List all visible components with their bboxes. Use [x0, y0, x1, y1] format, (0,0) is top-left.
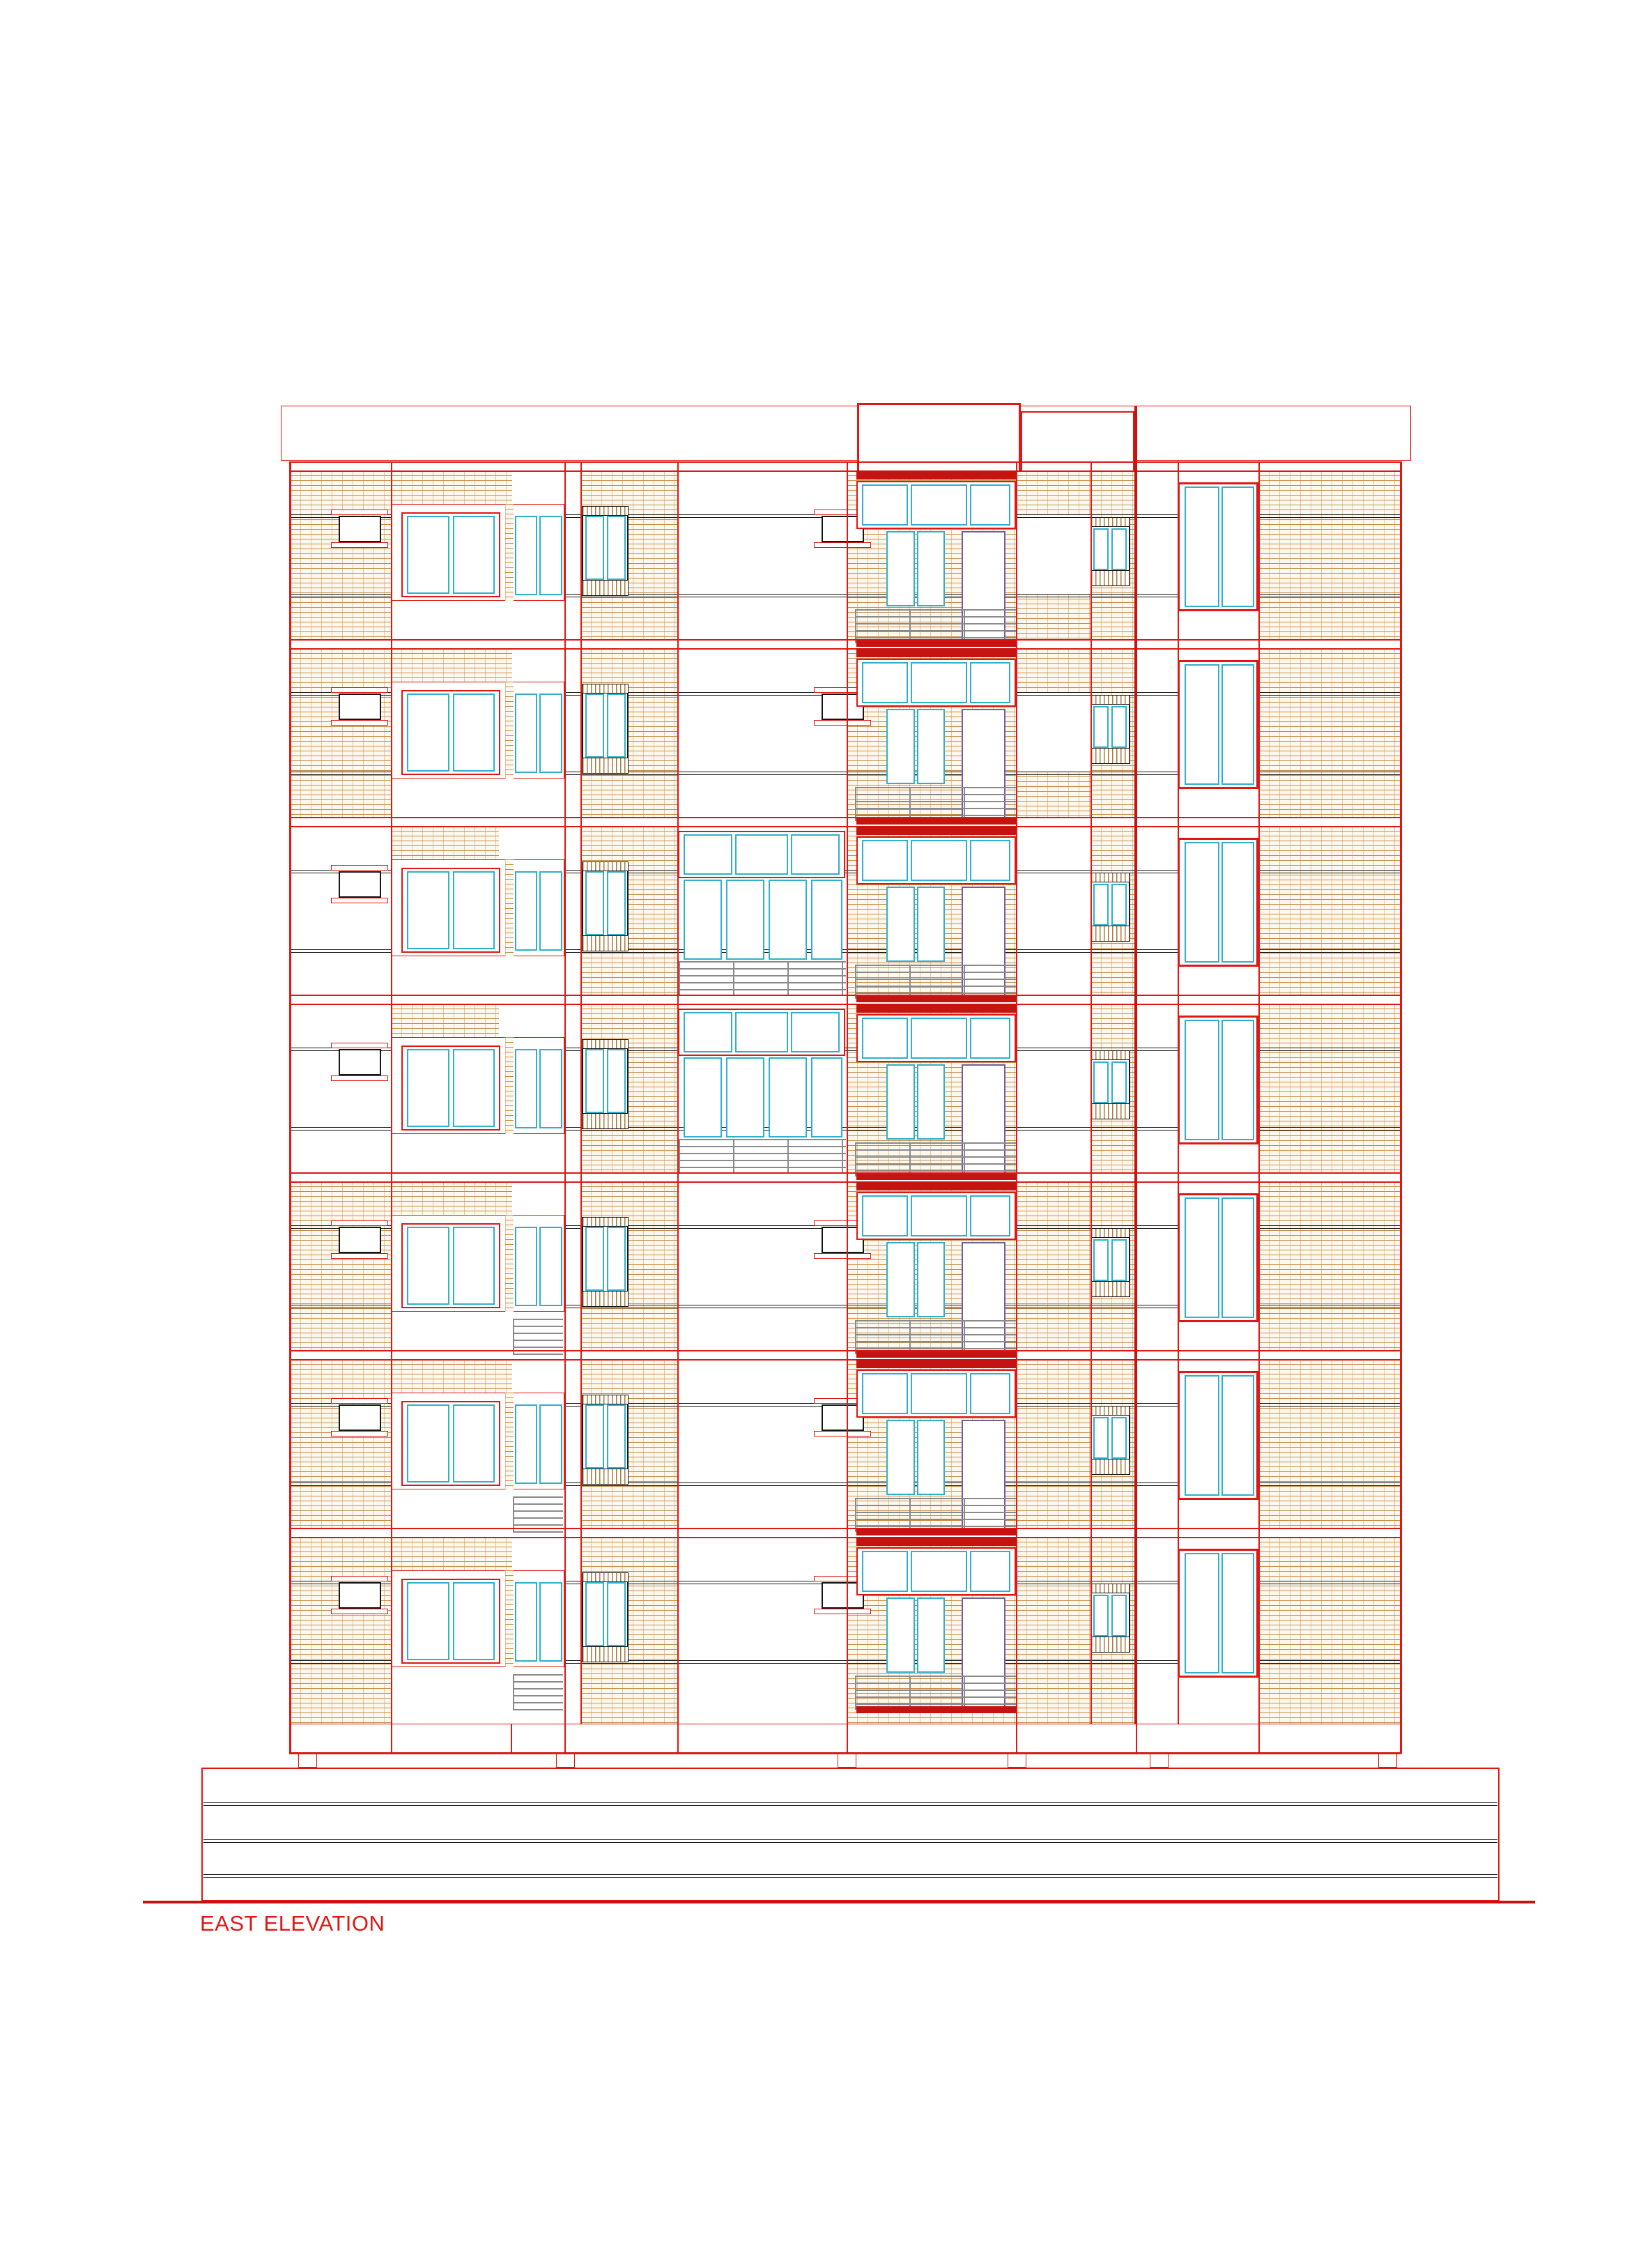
balcony-slab	[856, 1181, 1016, 1190]
vent-hatch	[1090, 570, 1130, 586]
vent-hatch	[1090, 1281, 1130, 1297]
footing	[556, 1754, 575, 1768]
window-pane	[607, 1404, 626, 1469]
window-pane	[970, 1018, 1010, 1059]
vent-hatch	[582, 506, 629, 516]
window-pane	[1111, 528, 1127, 570]
building-outline-right	[1400, 461, 1402, 1754]
floor-line	[290, 1359, 1401, 1361]
window-pane	[585, 871, 604, 935]
window-small-sill	[331, 1075, 388, 1081]
window-pane	[407, 1404, 449, 1482]
window-small-sill	[814, 1253, 871, 1259]
window-pane	[1185, 842, 1219, 963]
vent-hatch	[582, 684, 629, 694]
sunroom-glazing	[811, 880, 842, 960]
window-pane	[1111, 1595, 1127, 1637]
window-pane	[1111, 1062, 1127, 1103]
window-pane	[1093, 1595, 1109, 1637]
sunroom-glazing	[917, 1064, 945, 1140]
floor-line	[290, 470, 1401, 472]
window-pane	[407, 871, 449, 949]
column-line	[564, 461, 566, 1724]
window-narrow	[539, 1404, 562, 1484]
balcony-railing	[855, 787, 1016, 821]
brick-panel	[290, 1537, 391, 1724]
window-small-sill	[331, 1431, 388, 1436]
window-pane	[684, 834, 732, 875]
vent-hatch	[1090, 748, 1130, 764]
window-pane	[735, 1012, 788, 1052]
window-pane	[911, 1551, 967, 1592]
brick-panel	[1258, 826, 1401, 995]
column-line	[677, 461, 679, 1724]
column-line	[1016, 461, 1017, 1724]
balcony-slab	[856, 1351, 1016, 1358]
balcony-slab	[856, 1173, 1016, 1180]
vent-hatch	[1090, 926, 1130, 942]
window-pane	[1093, 1417, 1109, 1459]
sunroom-glazing	[886, 709, 915, 784]
floor-line	[290, 1181, 1401, 1183]
window-pane	[1185, 1553, 1219, 1673]
column-line	[847, 461, 848, 1724]
window-narrow	[539, 1227, 562, 1306]
window-pane	[911, 1195, 967, 1236]
sunroom-glazing	[917, 887, 945, 962]
brick-panel	[1016, 1181, 1090, 1350]
sunroom-glazing	[726, 880, 764, 960]
sunroom-glazing	[886, 1597, 915, 1673]
brick-panel	[1016, 648, 1090, 692]
ground-strip-divider	[511, 1724, 512, 1754]
window-pane	[585, 1582, 604, 1646]
podium-line	[203, 1802, 1497, 1806]
window-pane	[453, 871, 495, 949]
window-pane	[1221, 486, 1254, 607]
balcony-slab	[856, 995, 1016, 1002]
ground-strip-divider	[564, 1724, 566, 1754]
balcony-slab	[856, 648, 1016, 657]
balcony-slab	[856, 640, 1016, 647]
window-narrow	[515, 1049, 537, 1128]
brick-pier	[505, 1215, 514, 1312]
window-pane	[607, 1582, 626, 1646]
window-pane	[453, 1049, 495, 1127]
window-pane	[862, 484, 908, 526]
window-pane	[1185, 486, 1219, 607]
vent-hatch	[582, 1217, 629, 1227]
window-small-sill	[331, 1609, 388, 1614]
sunroom-glazing	[769, 1057, 807, 1137]
floor-line	[290, 1528, 1401, 1529]
window-narrow	[515, 1404, 537, 1484]
window-small-sill	[814, 1609, 871, 1614]
footing	[1008, 1754, 1026, 1768]
window-pane	[911, 662, 967, 703]
brick-panel	[1258, 1359, 1401, 1528]
vent-hatch	[582, 1572, 629, 1582]
window-pane	[1111, 1417, 1127, 1459]
brick-panel	[290, 470, 391, 639]
window-pane	[970, 840, 1010, 881]
window-pane	[585, 694, 604, 758]
sunroom-glazing	[684, 1057, 722, 1137]
sunroom-glazing	[917, 1420, 945, 1495]
window-small-sill	[331, 1253, 388, 1259]
vent-hatch	[1090, 1050, 1130, 1060]
window-pane	[407, 1582, 449, 1660]
window-pane	[911, 1018, 967, 1059]
window-pane	[1221, 664, 1254, 785]
window-pane	[453, 516, 495, 594]
sunroom-glazing	[684, 880, 722, 960]
balcony-railing	[513, 1674, 563, 1710]
balcony-slab	[856, 818, 1016, 825]
window-pane	[1185, 1020, 1219, 1140]
vent-hatch	[582, 1646, 629, 1662]
window-narrow	[539, 1049, 562, 1128]
ground-strip-divider	[1258, 1724, 1260, 1754]
window-narrow	[515, 694, 537, 773]
column-line	[580, 461, 582, 1724]
window-pane	[407, 694, 449, 772]
vent-hatch	[1090, 1228, 1130, 1238]
drawing-title: EAST ELEVATION	[200, 1911, 385, 1936]
window-pane	[862, 1195, 908, 1236]
window-pane	[607, 1227, 626, 1291]
balcony-slab	[856, 470, 1016, 480]
vent-hatch	[582, 1395, 629, 1404]
balcony-slab	[856, 826, 1016, 835]
parapet-band	[281, 406, 1411, 461]
brick-spandrel	[391, 826, 499, 859]
window-narrow	[539, 516, 562, 595]
brick-panel	[1258, 1004, 1401, 1172]
window-pane	[970, 484, 1010, 526]
vent-hatch	[1090, 873, 1130, 882]
window-pane	[911, 484, 967, 526]
window-small-lintel	[331, 865, 388, 871]
sunroom-glazing	[917, 709, 945, 784]
vent-hatch	[582, 1469, 629, 1485]
balcony-railing	[855, 1676, 1016, 1710]
window-narrow	[539, 1582, 562, 1662]
window-pane	[970, 662, 1010, 703]
ground-strip-divider	[391, 1724, 392, 1754]
window-pane	[407, 1049, 449, 1127]
vent-hatch	[1090, 1406, 1130, 1416]
floor-line	[290, 826, 1401, 827]
window-pane	[1221, 1553, 1254, 1673]
balcony-railing	[855, 1320, 1016, 1354]
ground-strip	[290, 1724, 1401, 1754]
window-pane	[862, 1018, 908, 1059]
floor-line	[290, 995, 1401, 996]
brick-panel	[1258, 470, 1401, 639]
window-pane	[1111, 706, 1127, 748]
column-line	[391, 461, 392, 1724]
balcony-railing	[855, 1142, 1016, 1177]
brick-pier	[505, 1037, 514, 1134]
ground-strip-divider	[1136, 1724, 1137, 1754]
footing	[1378, 1754, 1397, 1768]
brick-panel	[1016, 1537, 1090, 1724]
vent-hatch	[1090, 1637, 1130, 1653]
stair-tower-side	[1021, 411, 1134, 474]
building-outline-left	[289, 461, 291, 1754]
window-pane	[1221, 1020, 1254, 1140]
window-small-sill	[814, 720, 871, 726]
window-pane	[1093, 528, 1109, 570]
floor-line	[290, 817, 1401, 818]
window-pane	[1185, 664, 1219, 785]
brick-panel	[290, 648, 391, 817]
brick-panel	[1016, 772, 1090, 817]
brick-pier	[505, 504, 514, 601]
balcony-railing	[855, 609, 1016, 643]
window-narrow	[515, 871, 537, 951]
window-pane	[407, 1227, 449, 1305]
balcony-slab	[856, 1528, 1016, 1535]
vent-hatch	[582, 1039, 629, 1049]
window-pane	[1185, 1375, 1219, 1496]
brick-panel	[1016, 470, 1090, 514]
window-pane	[585, 1227, 604, 1291]
window-pane	[735, 834, 788, 875]
window-small-lintel	[331, 687, 388, 693]
vent-hatch	[1090, 695, 1130, 705]
window-pane	[911, 1373, 967, 1414]
floor-line	[290, 1350, 1401, 1351]
sunroom-glazing	[886, 1064, 915, 1140]
window-narrow	[515, 1227, 537, 1306]
column-line	[1258, 461, 1260, 1724]
sunroom-glazing	[886, 1420, 915, 1495]
column-line-thick	[1134, 406, 1137, 1754]
column-line	[1178, 461, 1179, 1724]
podium-line	[203, 1874, 1497, 1878]
sunroom-glazing	[917, 1597, 945, 1673]
balcony-slab	[856, 1706, 1016, 1713]
window-narrow	[539, 871, 562, 951]
window-pane	[1221, 1375, 1254, 1496]
window-small	[339, 1227, 381, 1253]
balcony-railing	[679, 1139, 846, 1174]
vent-hatch	[582, 1291, 629, 1307]
window-small-lintel	[331, 509, 388, 515]
window-small	[339, 1582, 381, 1609]
window-pane	[607, 871, 626, 935]
floor-line	[290, 639, 1401, 641]
window-pane	[607, 1049, 626, 1113]
window-small	[339, 871, 381, 898]
floor-line	[290, 1537, 1401, 1538]
window-pane	[607, 694, 626, 758]
vent-hatch	[582, 758, 629, 774]
window-small-lintel	[331, 1043, 388, 1048]
ground-strip-divider	[1016, 1724, 1017, 1754]
window-pane	[585, 1404, 604, 1469]
balcony-slab	[856, 1537, 1016, 1546]
window-pane	[970, 1373, 1010, 1414]
window-pane	[970, 1551, 1010, 1592]
vent-hatch	[1090, 517, 1130, 527]
sunroom-glazing	[886, 887, 915, 962]
window-pane	[862, 1551, 908, 1592]
window-small-lintel	[331, 1220, 388, 1226]
brick-pier	[505, 1570, 514, 1667]
brick-panel	[1016, 1359, 1090, 1528]
vent-hatch	[582, 580, 629, 596]
vent-hatch	[1090, 1459, 1130, 1475]
floor-line	[290, 461, 1401, 463]
ground-strip-divider	[677, 1724, 679, 1754]
brick-spandrel	[391, 1004, 499, 1037]
brick-spandrel	[391, 1359, 512, 1393]
footing	[1150, 1754, 1169, 1768]
sunroom-glazing	[917, 1242, 945, 1317]
window-pane	[453, 694, 495, 772]
vent-hatch	[1090, 1584, 1130, 1593]
brick-panel	[1258, 648, 1401, 817]
sunroom-glazing	[917, 531, 945, 606]
window-small-lintel	[331, 1576, 388, 1581]
window-pane	[791, 1012, 840, 1052]
window-pane	[453, 1404, 495, 1482]
window-pane	[607, 516, 626, 580]
window-pane	[1093, 884, 1109, 926]
window-small	[339, 516, 381, 542]
footing	[298, 1754, 317, 1768]
brick-spandrel	[391, 1181, 512, 1215]
brick-panel	[290, 1181, 391, 1350]
footing	[838, 1754, 856, 1768]
vent-hatch	[582, 861, 629, 871]
window-pane	[911, 840, 967, 881]
balcony-railing	[855, 1498, 1016, 1532]
window-small-sill	[331, 542, 388, 548]
window-pane	[862, 662, 908, 703]
window-pane	[1221, 842, 1254, 963]
brick-pier	[505, 859, 514, 956]
balcony-railing	[679, 961, 846, 996]
window-small	[339, 694, 381, 720]
window-pane	[1093, 706, 1109, 748]
window-pane	[1093, 1062, 1109, 1103]
balcony-slab	[856, 1004, 1016, 1013]
podium-base	[201, 1768, 1500, 1901]
brick-panel	[1258, 1181, 1401, 1350]
brick-pier	[505, 682, 514, 779]
brick-spandrel	[391, 470, 512, 504]
window-pane	[1185, 1197, 1219, 1318]
balcony-slab	[856, 1359, 1016, 1368]
vent-hatch	[582, 935, 629, 951]
sunroom-glazing	[886, 531, 915, 606]
brick-panel	[1016, 594, 1090, 639]
window-small-sill	[814, 1431, 871, 1436]
floor-line	[290, 1004, 1401, 1005]
window-pane	[585, 516, 604, 580]
ground-line	[143, 1901, 1535, 1903]
window-pane	[585, 1049, 604, 1113]
ground-strip-divider	[847, 1724, 848, 1754]
window-pane	[1093, 1239, 1109, 1281]
brick-spandrel	[391, 1537, 512, 1570]
window-pane	[453, 1582, 495, 1660]
window-small-sill	[814, 542, 871, 548]
window-pane	[407, 516, 449, 594]
window-pane	[791, 834, 840, 875]
floor-line	[290, 648, 1401, 650]
vent-hatch	[582, 1113, 629, 1129]
sunroom-glazing	[726, 1057, 764, 1137]
brick-panel	[290, 1359, 391, 1528]
window-pane	[970, 1195, 1010, 1236]
brick-pier	[505, 1393, 514, 1489]
window-pane	[1221, 1197, 1254, 1318]
window-pane	[862, 1373, 908, 1414]
podium-line	[203, 1839, 1497, 1843]
window-pane	[862, 840, 908, 881]
window-narrow	[515, 516, 537, 595]
window-small-sill	[331, 720, 388, 726]
window-small	[339, 1049, 381, 1075]
floor-line	[290, 1172, 1401, 1174]
window-narrow	[515, 1582, 537, 1662]
window-pane	[1111, 884, 1127, 926]
sunroom-glazing	[811, 1057, 842, 1137]
vent-hatch	[1090, 1103, 1130, 1119]
elevation-drawing-canvas: EAST ELEVATION	[0, 0, 1634, 2268]
brick-spandrel	[391, 648, 512, 682]
sunroom-glazing	[886, 1242, 915, 1317]
window-pane	[684, 1012, 732, 1052]
window-pane	[453, 1227, 495, 1305]
window-pane	[1111, 1239, 1127, 1281]
brick-panel	[1258, 1537, 1401, 1724]
window-small-sill	[331, 898, 388, 903]
window-small	[339, 1404, 381, 1431]
column-line	[1090, 461, 1092, 1724]
window-narrow	[539, 694, 562, 773]
balcony-railing	[855, 965, 1016, 999]
window-small-lintel	[331, 1398, 388, 1404]
sunroom-glazing	[769, 880, 807, 960]
